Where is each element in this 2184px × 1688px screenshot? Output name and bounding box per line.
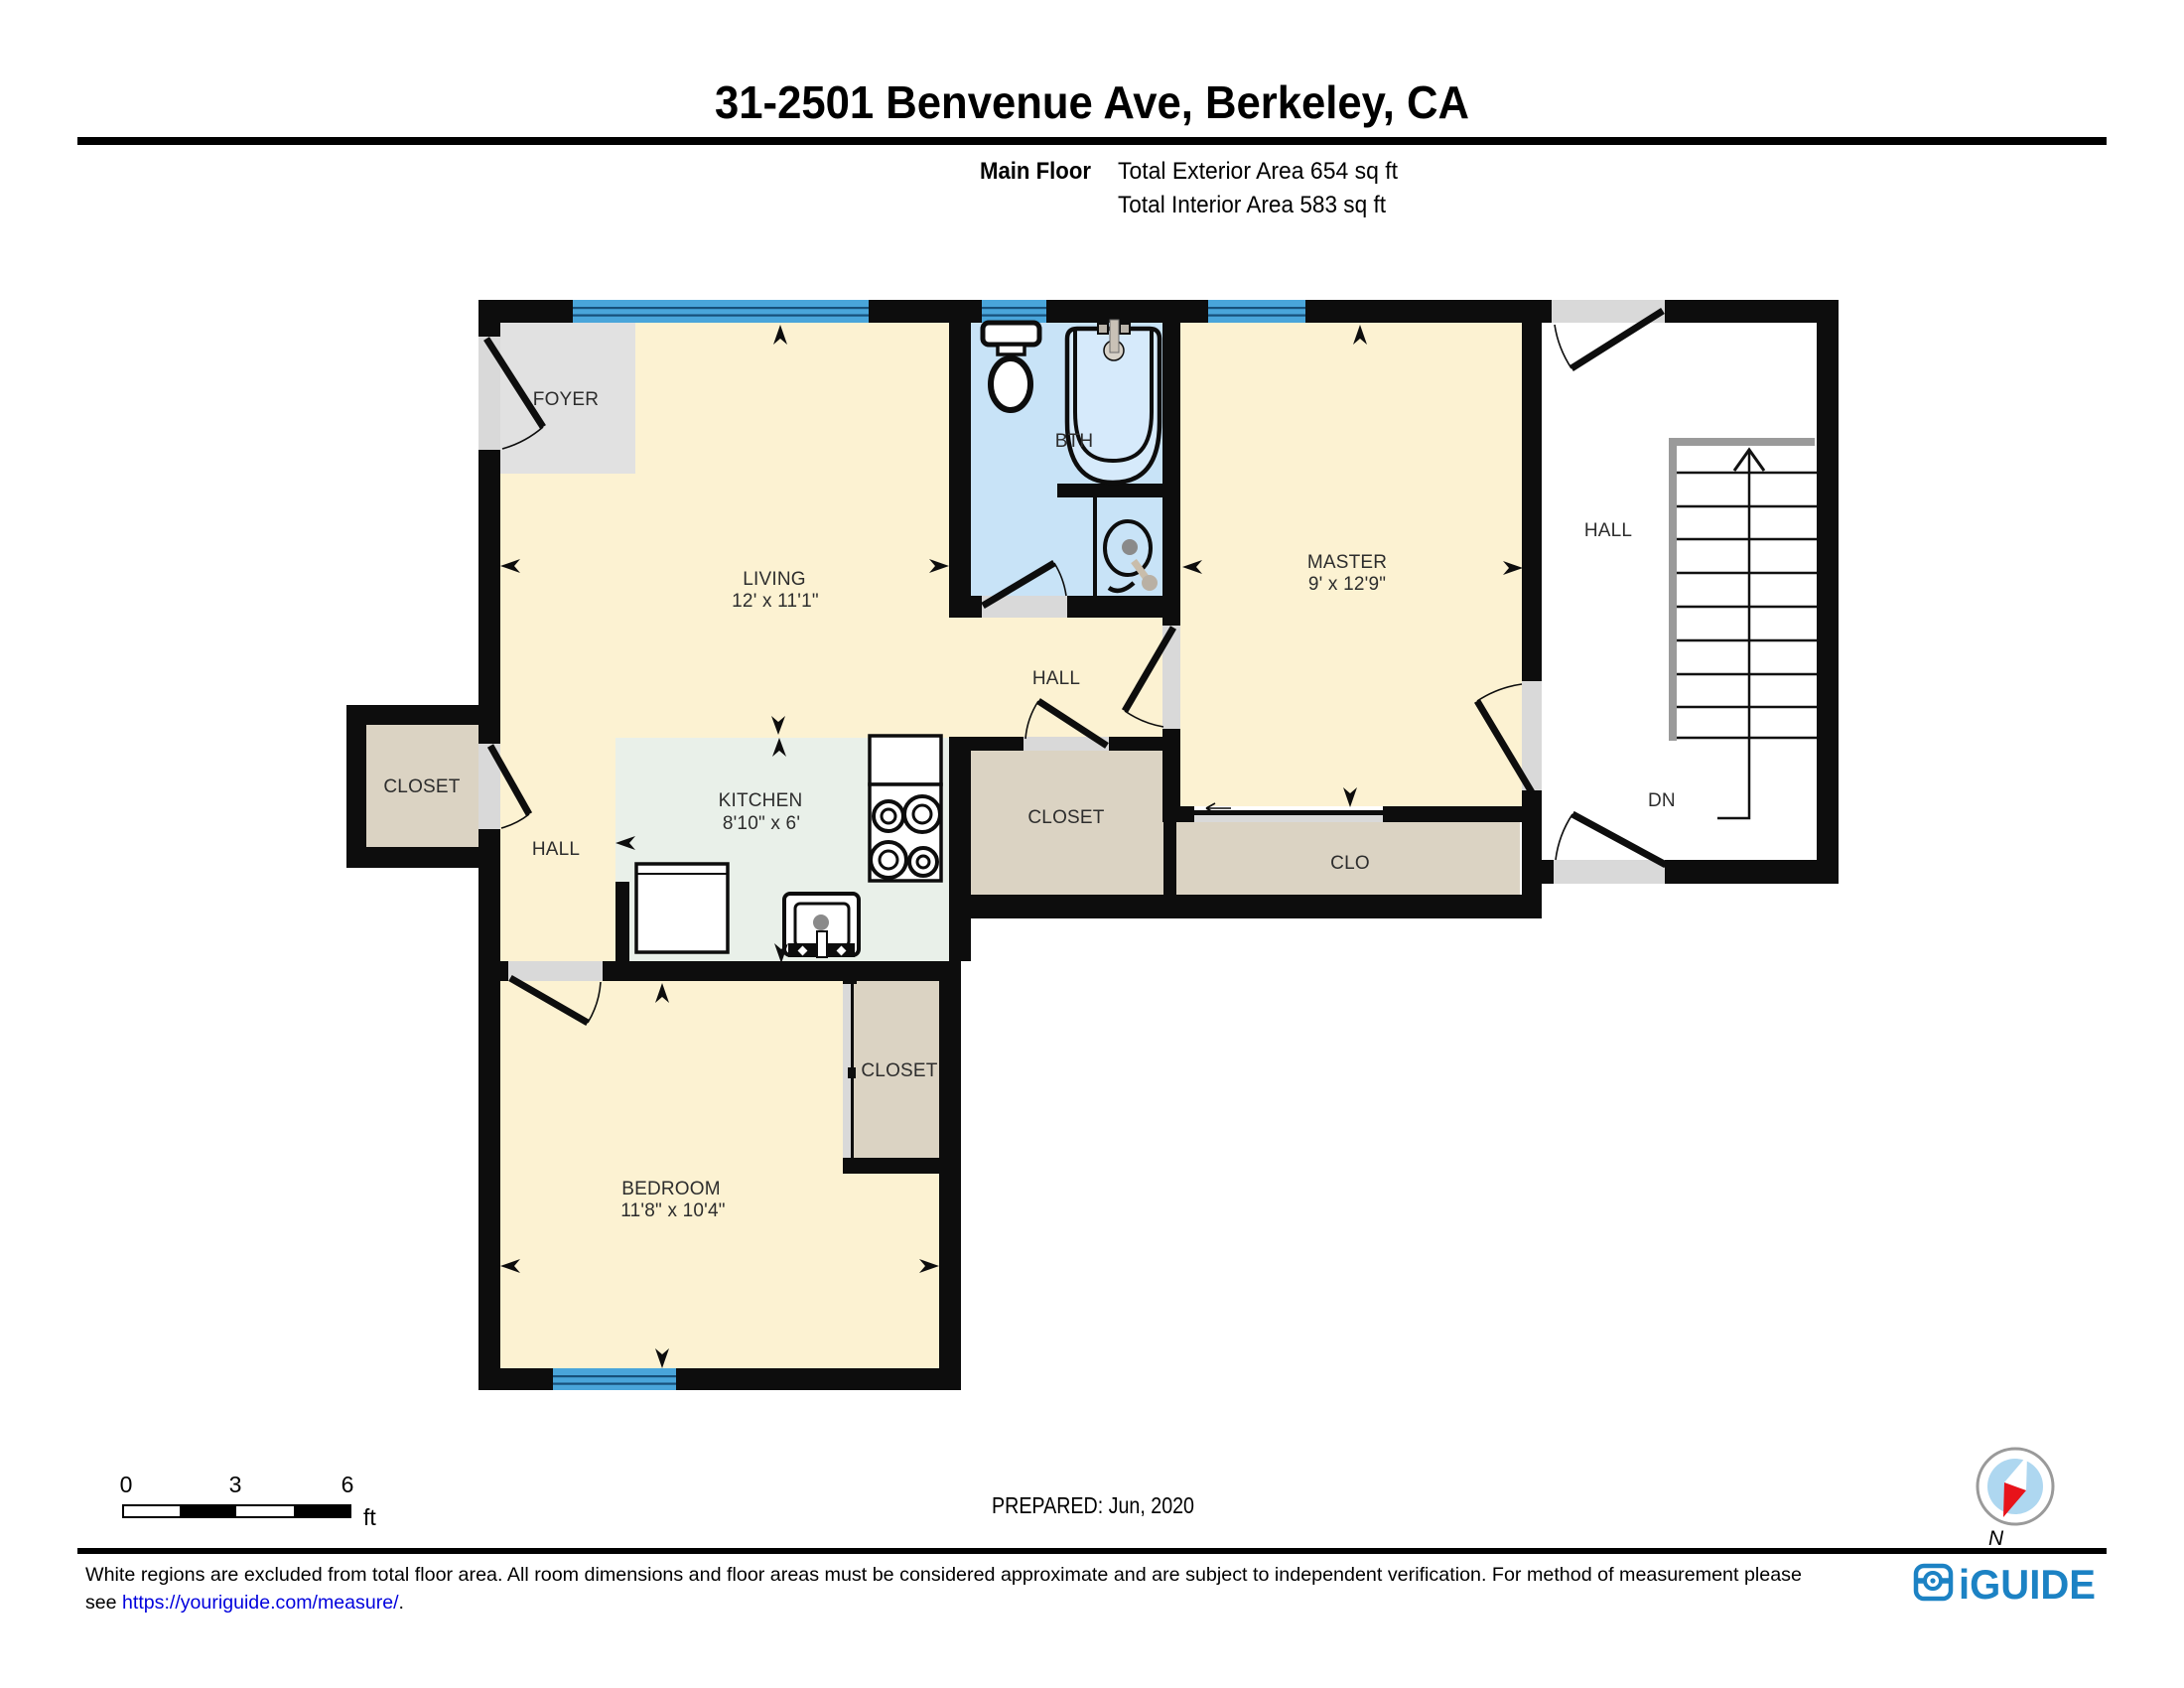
svg-text:6: 6 bbox=[341, 1472, 354, 1497]
svg-text:Main Floor: Main Floor bbox=[980, 158, 1091, 185]
svg-text:12' x 11'1": 12' x 11'1" bbox=[732, 591, 819, 612]
svg-text:CLO: CLO bbox=[1330, 853, 1370, 874]
svg-text:31-2501 Benvenue Ave, Berkeley: 31-2501 Benvenue Ave, Berkeley, CA bbox=[715, 76, 1469, 128]
svg-text:see https://youriguide.com/mea: see https://youriguide.com/measure/. bbox=[85, 1592, 404, 1614]
svg-text:Total Interior Area 583 sq ft: Total Interior Area 583 sq ft bbox=[1118, 192, 1386, 218]
svg-text:FOYER: FOYER bbox=[533, 389, 599, 410]
svg-text:HALL: HALL bbox=[532, 839, 580, 860]
svg-text:9' x 12'9": 9' x 12'9" bbox=[1308, 574, 1386, 595]
svg-text:HALL: HALL bbox=[1032, 668, 1080, 689]
svg-text:CLOSET: CLOSET bbox=[861, 1060, 937, 1081]
svg-text:MASTER: MASTER bbox=[1307, 552, 1387, 573]
svg-text:DN: DN bbox=[1648, 790, 1676, 811]
svg-text:0: 0 bbox=[120, 1472, 133, 1497]
svg-text:BTH: BTH bbox=[1055, 431, 1094, 452]
svg-text:White regions are excluded fro: White regions are excluded from total fl… bbox=[85, 1564, 1802, 1586]
svg-text:iGUIDE: iGUIDE bbox=[1959, 1561, 2096, 1608]
svg-text:CLOSET: CLOSET bbox=[1027, 807, 1104, 828]
svg-text:Total Exterior Area 654 sq ft: Total Exterior Area 654 sq ft bbox=[1118, 158, 1398, 185]
svg-text:LIVING: LIVING bbox=[743, 569, 806, 590]
svg-text:11'8" x 10'4": 11'8" x 10'4" bbox=[620, 1200, 725, 1221]
svg-text:N: N bbox=[1988, 1527, 2004, 1550]
svg-text:CLOSET: CLOSET bbox=[383, 776, 460, 797]
svg-text:3: 3 bbox=[229, 1472, 242, 1497]
svg-text:8'10" x 6': 8'10" x 6' bbox=[723, 813, 800, 834]
svg-text:PREPARED: Jun, 2020: PREPARED: Jun, 2020 bbox=[992, 1492, 1194, 1518]
svg-text:ft: ft bbox=[363, 1504, 376, 1530]
svg-text:BEDROOM: BEDROOM bbox=[621, 1179, 721, 1199]
svg-text:HALL: HALL bbox=[1584, 520, 1632, 541]
svg-text:KITCHEN: KITCHEN bbox=[719, 790, 803, 811]
